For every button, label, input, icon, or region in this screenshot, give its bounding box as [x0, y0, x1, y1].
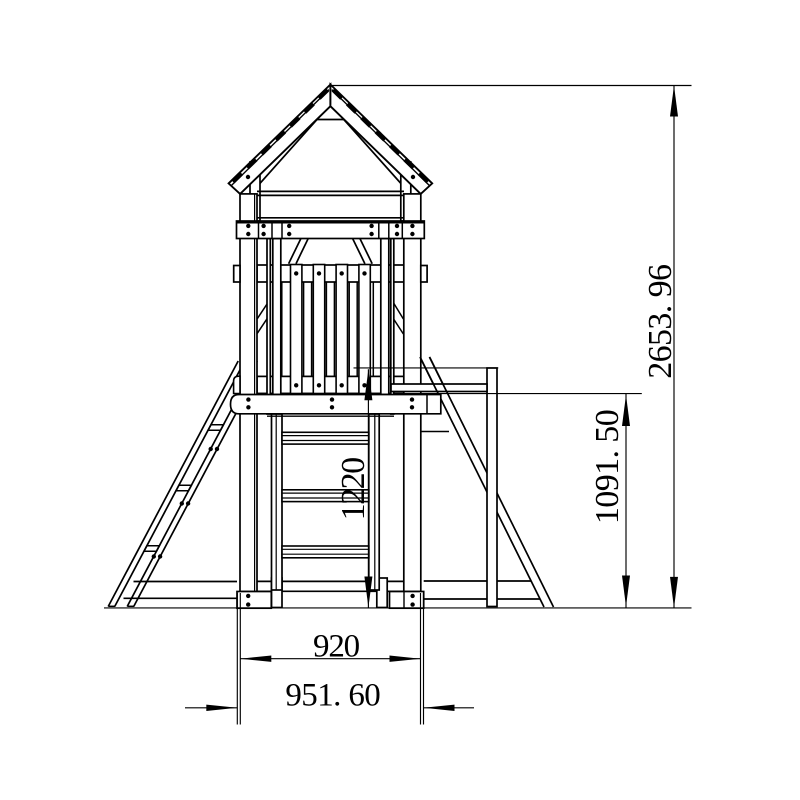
svg-text:1091. 50: 1091. 50 [589, 410, 626, 524]
svg-text:920: 920 [313, 628, 360, 664]
svg-text:951. 60: 951. 60 [285, 677, 380, 713]
svg-text:1220: 1220 [335, 458, 372, 521]
svg-text:2653. 96: 2653. 96 [642, 265, 679, 379]
